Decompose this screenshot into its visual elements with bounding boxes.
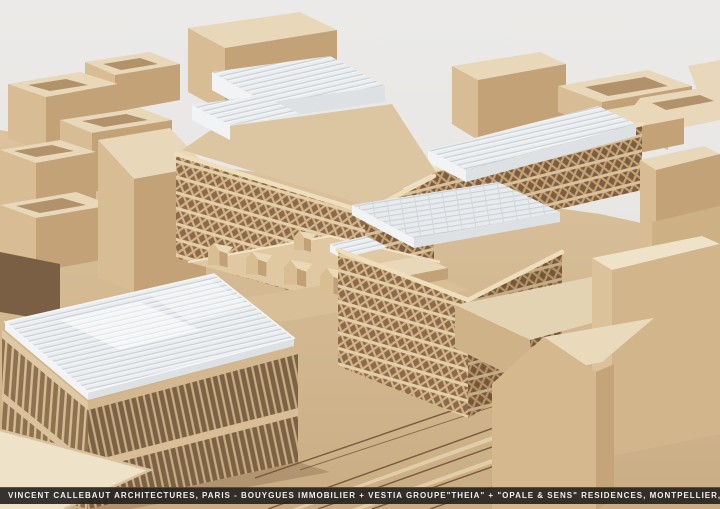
caption-bar: VINCENT CALLEBAUT ARCHITECTURES, PARIS -…: [0, 487, 720, 504]
model-scene: [0, 0, 720, 509]
model-photograph: VINCENT CALLEBAUT ARCHITECTURES, PARIS -…: [0, 0, 720, 509]
caption-right: "THEIA" + "OPALE & SENS" RESIDENCES, MON…: [447, 488, 720, 504]
caption-left: VINCENT CALLEBAUT ARCHITECTURES, PARIS -…: [8, 488, 447, 504]
